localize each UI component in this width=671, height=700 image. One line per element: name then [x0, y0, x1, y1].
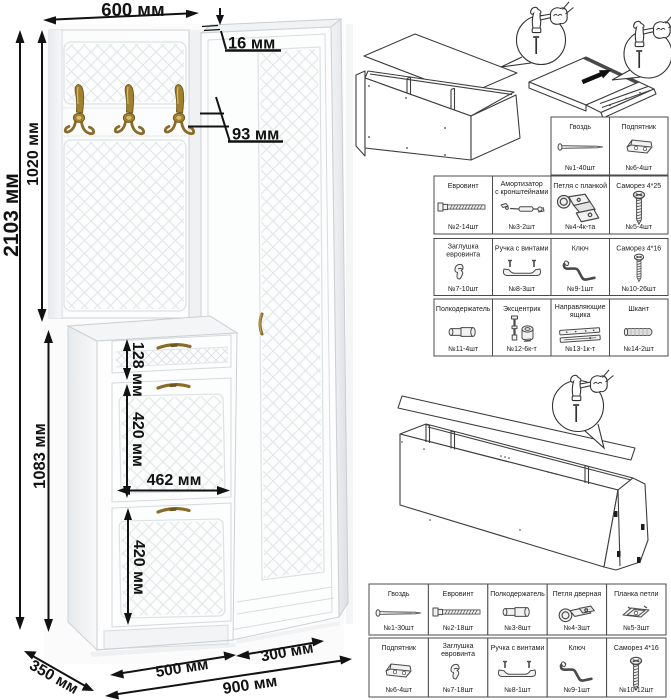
- svg-text:№7-18шт: №7-18шт: [443, 687, 474, 694]
- svg-text:Ручка с винтами: Ручка с винтами: [495, 246, 549, 253]
- svg-text:Ключ: Ключ: [568, 645, 585, 652]
- svg-text:Эксцентрик: Эксцентрик: [503, 306, 541, 313]
- svg-text:2103 мм: 2103 мм: [0, 173, 23, 257]
- svg-text:Заглушка: Заглушка: [448, 244, 479, 251]
- svg-text:Гвоздь: Гвоздь: [569, 124, 591, 131]
- svg-text:Подпятник: Подпятник: [621, 124, 656, 131]
- svg-text:420 мм: 420 мм: [130, 540, 147, 595]
- svg-text:Полкодержатель: Полкодержатель: [436, 306, 491, 313]
- svg-text:Планка петли: Планка петли: [614, 591, 659, 598]
- svg-text:№2-18шт: №2-18шт: [443, 625, 474, 632]
- svg-text:Полкодержатель: Полкодержатель: [490, 591, 545, 598]
- svg-text:№6-4шт: №6-4шт: [625, 165, 652, 172]
- svg-text:Заглушка: Заглушка: [443, 643, 474, 650]
- svg-text:420 мм: 420 мм: [129, 412, 146, 467]
- svg-text:№10-26шт: №10-26шт: [622, 286, 657, 293]
- svg-text:Направляющие: Направляющие: [555, 304, 606, 311]
- svg-text:Петля дверная: Петля дверная: [553, 591, 602, 598]
- svg-text:Ключ: Ключ: [572, 246, 589, 253]
- svg-text:Подпятник: Подпятник: [381, 645, 416, 652]
- svg-text:№9-1шт: №9-1шт: [564, 687, 591, 694]
- svg-text:№3-8шт: №3-8шт: [504, 625, 531, 632]
- svg-text:№7-10шт: №7-10шт: [448, 286, 479, 293]
- svg-text:Саморез 4*16: Саморез 4*16: [614, 645, 659, 652]
- svg-text:462 мм: 462 мм: [147, 472, 202, 489]
- svg-text:№13-1к-т: №13-1к-т: [565, 346, 596, 353]
- svg-text:евровинта: евровинта: [441, 651, 475, 658]
- svg-text:№5-4шт: №5-4шт: [625, 224, 652, 231]
- svg-text:№4-3шт: №4-3шт: [564, 625, 591, 632]
- svg-text:№1-30шт: №1-30шт: [384, 625, 415, 632]
- svg-text:№3-2шт: №3-2шт: [508, 224, 535, 231]
- svg-text:Саморез 4*25: Саморез 4*25: [616, 183, 661, 190]
- svg-text:Ручка с винтами: Ручка с винтами: [491, 645, 545, 652]
- svg-text:Саморез 4*16: Саморез 4*16: [616, 246, 661, 253]
- svg-text:№10-12шт: №10-12шт: [619, 687, 654, 694]
- svg-text:Евровинт: Евровинт: [448, 183, 480, 190]
- svg-text:16 мм: 16 мм: [228, 35, 275, 53]
- svg-text:93 мм: 93 мм: [232, 126, 279, 144]
- svg-text:№8-3шт: №8-3шт: [508, 286, 535, 293]
- svg-text:№6-4шт: №6-4шт: [385, 687, 412, 694]
- svg-text:Шкант: Шкант: [628, 306, 649, 313]
- svg-text:№1-40шт: №1-40шт: [565, 165, 596, 172]
- svg-text:№12-6к-т: №12-6к-т: [507, 346, 538, 353]
- svg-text:600 мм: 600 мм: [101, 0, 164, 20]
- svg-text:№4-4к-та: №4-4к-та: [565, 224, 595, 231]
- svg-text:Гвоздь: Гвоздь: [388, 591, 410, 598]
- svg-text:№5-3шт: №5-3шт: [623, 625, 650, 632]
- svg-text:№14-2шт: №14-2шт: [624, 346, 655, 353]
- svg-text:128 мм: 128 мм: [129, 342, 146, 397]
- svg-text:№11-4шт: №11-4шт: [448, 346, 479, 353]
- svg-text:Петля с планкой: Петля с планкой: [553, 182, 607, 190]
- svg-text:Амортизатор: Амортизатор: [501, 181, 543, 188]
- svg-text:с кронштейнами: с кронштейнами: [495, 188, 548, 196]
- svg-text:1020 мм: 1020 мм: [25, 122, 42, 186]
- svg-text:ящика: ящика: [570, 312, 591, 319]
- svg-text:№8-1шт: №8-1шт: [504, 687, 531, 694]
- svg-text:№2-14шт: №2-14шт: [448, 224, 479, 231]
- svg-text:№9-1шт: №9-1шт: [567, 286, 594, 293]
- svg-text:1083 мм: 1083 мм: [31, 423, 49, 489]
- svg-text:евровинта: евровинта: [446, 252, 480, 259]
- svg-text:Евровинт: Евровинт: [443, 591, 475, 598]
